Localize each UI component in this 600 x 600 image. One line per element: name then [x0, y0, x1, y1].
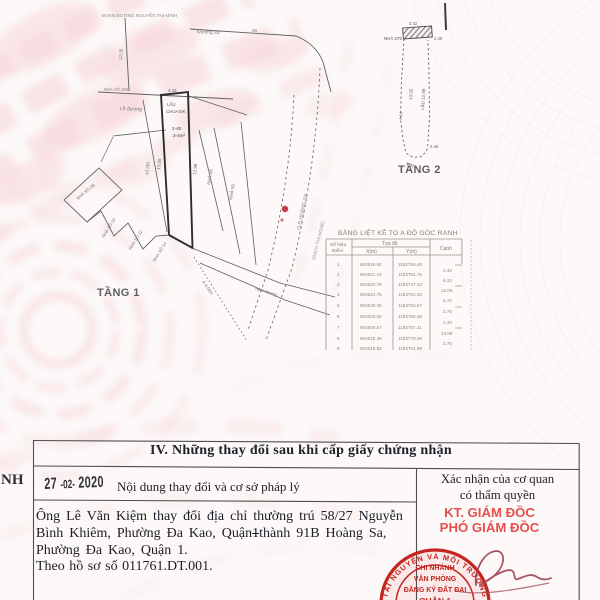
svg-text:Điểm: Điểm	[332, 247, 343, 254]
svg-text:BẢNG LIỆT KÊ TỌ A ĐỘ GÓC RANH: BẢNG LIỆT KÊ TỌ A ĐỘ GÓC RANH	[338, 228, 458, 237]
svg-text:CHUA ĐK: CHUA ĐK	[166, 109, 186, 114]
svg-text:1: 1	[337, 262, 340, 267]
svg-text:5.72: 5.72	[443, 298, 452, 303]
svg-text:2.40: 2.40	[434, 36, 443, 41]
svg-text:604621.24: 604621.24	[360, 272, 382, 277]
svg-text:2: 2	[337, 272, 340, 277]
svg-text:604620.36: 604620.36	[360, 303, 382, 308]
svg-text:Y(m): Y(m)	[406, 249, 417, 255]
svg-text:Đường số: Đường số	[197, 29, 220, 36]
svg-text:13.08: 13.08	[441, 331, 453, 336]
svg-text:TẦNG 2: TẦNG 2	[398, 163, 441, 176]
svg-text:NHÀ SỒ 283: NHÀ SỒ 283	[104, 87, 129, 92]
svg-text:3.42: 3.42	[168, 88, 177, 93]
svg-text:LẦU: LẦU	[167, 102, 176, 107]
svg-text:604619.92: 604619.92	[360, 262, 382, 267]
svg-text:4: 4	[337, 292, 340, 297]
svg-text:2-40: 2-40	[172, 126, 182, 131]
svg-text:12.05: 12.05	[441, 288, 453, 293]
svg-text:Lề đường: Lề đường	[120, 106, 142, 113]
svg-text:1193747.43: 1193747.43	[398, 282, 422, 287]
svg-text:1193758.46: 1193758.46	[398, 262, 422, 267]
svg-text:604603.05: 604603.05	[360, 314, 382, 319]
svg-text:1193754.75: 1193754.75	[398, 272, 422, 277]
svg-text:5: 5	[337, 303, 340, 308]
svg-text:6: 6	[337, 314, 340, 319]
svg-text:Cạnh: Cạnh	[440, 246, 452, 252]
svg-text:13.05: 13.05	[408, 88, 414, 100]
svg-text:7: 7	[337, 325, 340, 330]
svg-text:NHÀ 275: NHÀ 275	[384, 36, 402, 41]
svg-text:ĐOẠN ĐƯỜNG NGUYỄN THỊ MINH: ĐOẠN ĐƯỜNG NGUYỄN THỊ MINH	[102, 12, 177, 18]
svg-text:Tọa độ: Tọa độ	[382, 241, 398, 247]
svg-text:604622.78: 604622.78	[360, 282, 382, 287]
svg-text:2.46: 2.46	[430, 144, 439, 149]
svg-text:Số hiệu: Số hiệu	[330, 242, 347, 248]
svg-text:604618.39: 604618.39	[360, 336, 382, 341]
svg-text:12.05: 12.05	[118, 48, 124, 60]
svg-text:X(m): X(m)	[366, 249, 377, 255]
svg-text:6.34: 6.34	[443, 278, 452, 283]
svg-text:3.42: 3.42	[443, 268, 452, 273]
svg-text:30: 30	[252, 28, 258, 33]
svg-text:3.75: 3.75	[443, 341, 452, 346]
svg-text:1193757.21: 1193757.21	[398, 325, 422, 330]
svg-text:8: 8	[337, 336, 340, 341]
svg-text:1193756.46: 1193756.46	[398, 314, 422, 319]
svg-text:1193754.99: 1193754.99	[398, 346, 422, 351]
svg-text:4.10: 4.10	[398, 111, 404, 120]
svg-text:3.75: 3.75	[443, 309, 452, 314]
svg-text:3-4m²: 3-4m²	[173, 133, 185, 138]
svg-text:604619.82: 604619.82	[360, 346, 382, 351]
svg-text:3.42: 3.42	[409, 21, 418, 26]
svg-text:604624.75: 604624.75	[360, 292, 382, 297]
svg-text:1193752.33: 1193752.33	[398, 292, 422, 297]
svg-text:2.46: 2.46	[443, 320, 452, 325]
svg-text:604600.57: 604600.57	[360, 325, 382, 330]
svg-text:1193753.57: 1193753.57	[398, 303, 422, 308]
svg-text:TẦNG 1: TẦNG 1	[97, 286, 140, 299]
svg-text:3: 3	[337, 282, 340, 287]
svg-text:1193779.36: 1193779.36	[398, 336, 422, 341]
svg-text:9: 9	[337, 346, 340, 351]
